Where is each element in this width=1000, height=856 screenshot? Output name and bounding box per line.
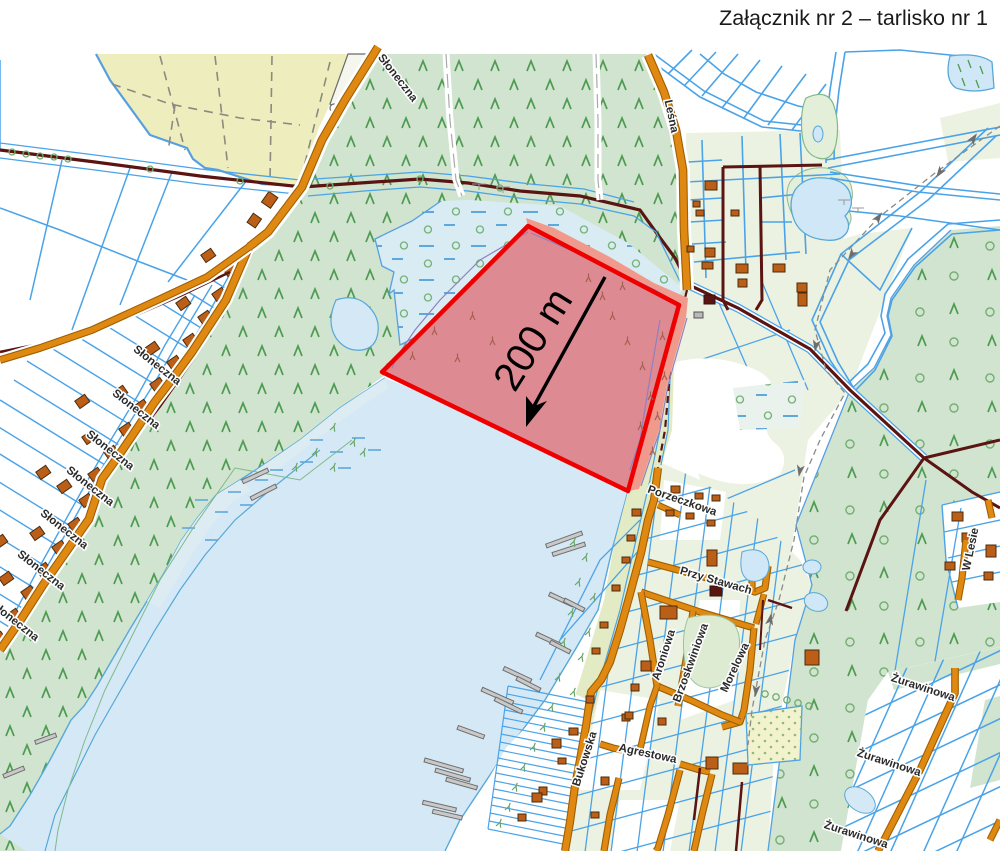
svg-text:Załącznik nr 2 – tarlisko nr 1: Załącznik nr 2 – tarlisko nr 1	[719, 6, 988, 30]
